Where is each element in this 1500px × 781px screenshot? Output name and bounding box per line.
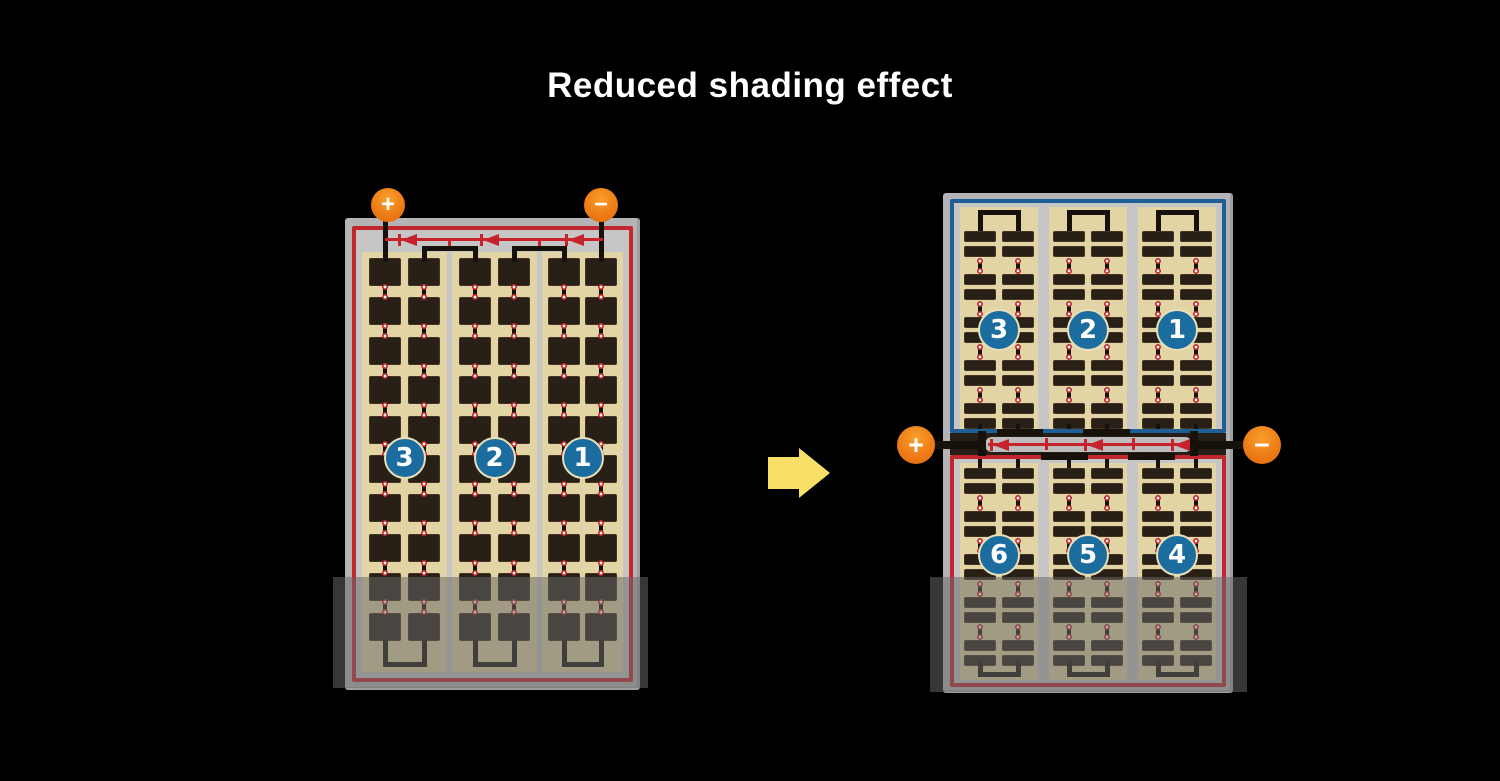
transform-arrow-icon <box>768 457 799 489</box>
wire-end-bar <box>978 431 986 456</box>
wire-end-bar <box>1190 431 1198 456</box>
shade-overlay-right <box>930 577 1247 692</box>
string-top-connector <box>422 246 478 262</box>
string-number-badge: 2 <box>474 437 516 479</box>
positive-terminal: + <box>897 426 935 464</box>
string-number-badge: 6 <box>978 534 1020 576</box>
transform-arrow-head <box>799 448 830 498</box>
string-number-badge: 3 <box>384 437 426 479</box>
shade-overlay-left <box>333 577 648 688</box>
negative-terminal: − <box>584 188 618 222</box>
bus-interconnect <box>1041 453 1088 460</box>
string-number-badge: 1 <box>1156 309 1198 351</box>
bus-interconnect <box>997 429 1043 436</box>
string-number-badge: 2 <box>1067 309 1109 351</box>
bus-interconnect <box>1128 453 1175 460</box>
positive-terminal: + <box>371 188 405 222</box>
terminal-wire <box>1194 441 1246 449</box>
string-number-badge: 3 <box>978 309 1020 351</box>
bypass-diode-icon <box>1087 439 1103 451</box>
string-number-badge: 5 <box>1067 534 1109 576</box>
diode-bus-tap <box>1132 438 1135 450</box>
diagram-stage: Reduced shading effect +−321+−321654 <box>0 0 1500 781</box>
bypass-diode-icon <box>483 234 499 246</box>
negative-terminal: − <box>1243 426 1281 464</box>
diode-bus-tap <box>1045 438 1048 450</box>
bypass-diode-icon <box>1174 439 1190 451</box>
terminal-wire <box>930 441 982 449</box>
bypass-diode-icon <box>993 439 1009 451</box>
bypass-diode-icon <box>568 234 584 246</box>
bypass-diode-icon <box>401 234 417 246</box>
diagram-title: Reduced shading effect <box>0 66 1500 106</box>
bus-interconnect <box>1083 429 1130 436</box>
string-top-connector <box>512 246 567 262</box>
string-number-badge: 4 <box>1156 534 1198 576</box>
string-number-badge: 1 <box>562 437 604 479</box>
